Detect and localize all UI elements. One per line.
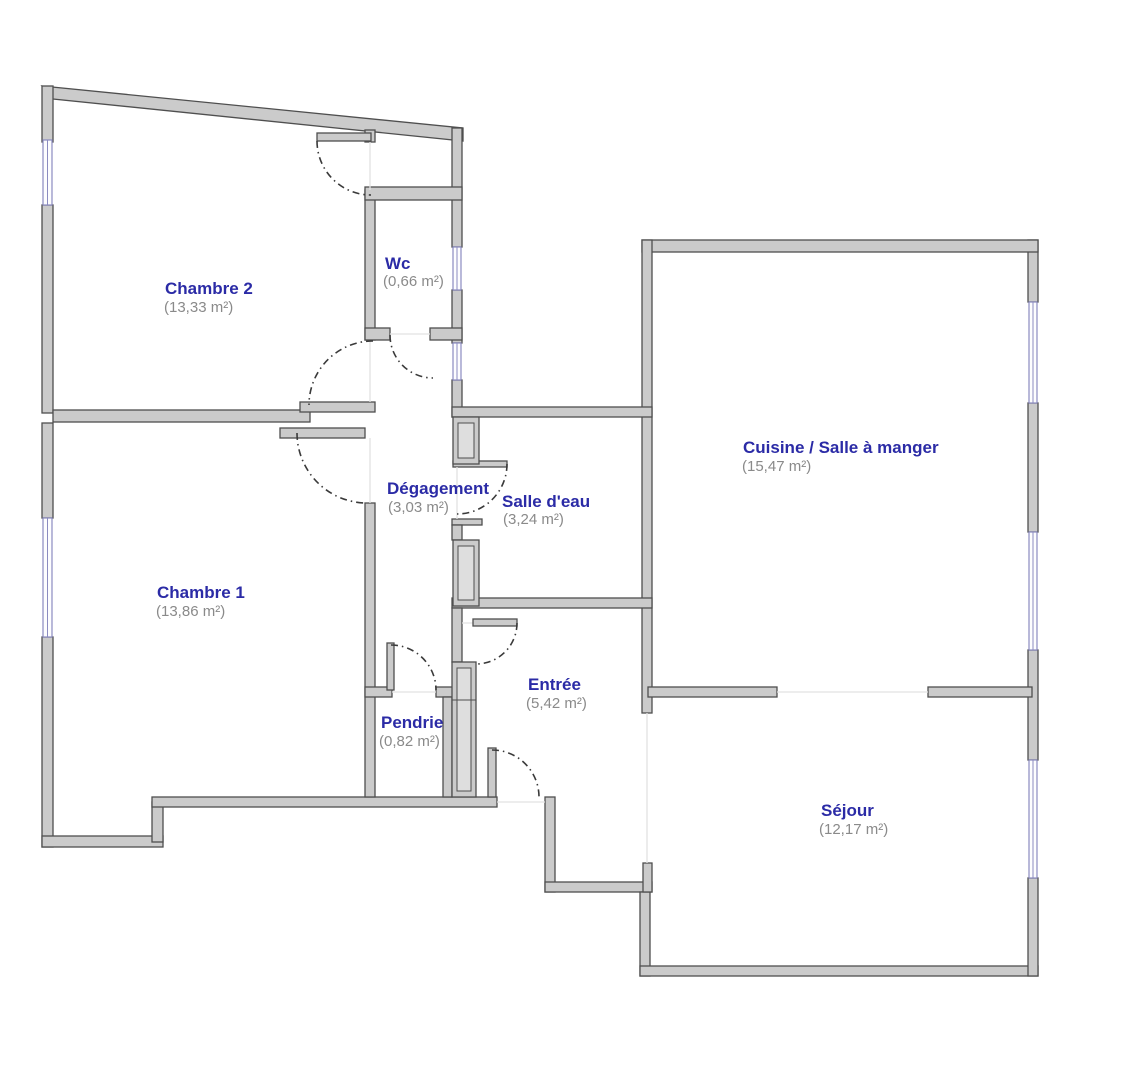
technical-shaft-inner bbox=[458, 546, 474, 600]
wall-segment bbox=[452, 407, 652, 417]
door-leaf bbox=[317, 133, 371, 141]
door-swing-arc bbox=[317, 141, 371, 195]
door-swing-arc bbox=[476, 623, 517, 664]
room-area-entree: (5,42 m²) bbox=[526, 695, 587, 712]
wall-segment bbox=[42, 637, 53, 847]
wall-segment bbox=[42, 205, 53, 413]
wall-segment bbox=[152, 802, 163, 842]
wall-segment bbox=[152, 797, 497, 807]
room-area-wc: (0,66 m²) bbox=[383, 273, 444, 290]
wall-segment bbox=[1028, 650, 1038, 760]
room-area-sejour: (12,17 m²) bbox=[819, 821, 888, 838]
room-label-degagement: Dégagement bbox=[387, 479, 489, 498]
wall-segment bbox=[452, 525, 462, 540]
room-area-pendrie: (0,82 m²) bbox=[379, 733, 440, 750]
room-labels-layer: Chambre 2 (13,33 m²) Wc (0,66 m²) Chambr… bbox=[156, 254, 939, 838]
room-label-wc: Wc bbox=[385, 254, 411, 273]
door-swing-arc bbox=[309, 341, 373, 405]
room-label-salle-deau: Salle d'eau bbox=[502, 492, 590, 511]
floorplan-drawing: Chambre 2 (13,33 m²) Wc (0,66 m²) Chambr… bbox=[0, 0, 1134, 1080]
floorplan-page: Chambre 2 (13,33 m²) Wc (0,66 m²) Chambr… bbox=[0, 0, 1134, 1080]
wall-segment bbox=[642, 240, 1038, 252]
room-label-pendrie: Pendrie bbox=[381, 713, 443, 732]
technical-shaft-inner bbox=[457, 668, 471, 791]
door-leaf bbox=[488, 748, 496, 797]
door-swing-arc bbox=[390, 335, 433, 378]
wall-segment bbox=[443, 697, 452, 797]
wall-segment bbox=[640, 966, 1038, 976]
room-label-sejour: Séjour bbox=[821, 801, 874, 820]
wall-segment bbox=[365, 503, 375, 797]
wall-segment bbox=[430, 328, 462, 340]
room-label-cuisine: Cuisine / Salle à manger bbox=[743, 438, 939, 457]
wall-segment bbox=[452, 608, 462, 662]
wall-segment bbox=[928, 687, 1032, 697]
wall-segment bbox=[452, 519, 482, 525]
wall-segment bbox=[280, 428, 365, 438]
wall-segment bbox=[640, 892, 650, 976]
wall-segment bbox=[53, 410, 310, 422]
room-area-salle-deau: (3,24 m²) bbox=[503, 511, 564, 528]
wall-segment bbox=[365, 190, 375, 340]
room-area-chambre-2: (13,33 m²) bbox=[164, 299, 233, 316]
wall-segment bbox=[648, 687, 777, 697]
walls-layer bbox=[42, 86, 1038, 976]
door-swing-arc bbox=[492, 750, 539, 797]
door-leaf bbox=[387, 643, 394, 690]
wall-segment bbox=[42, 423, 53, 518]
door-swing-arc bbox=[297, 433, 367, 503]
wall-segment bbox=[365, 187, 462, 200]
wall-segment bbox=[42, 836, 163, 847]
wall-segment bbox=[643, 863, 652, 892]
wall-segment bbox=[42, 86, 53, 142]
door-swing-arc bbox=[391, 645, 436, 690]
wall-segment bbox=[1028, 403, 1038, 532]
wall-segment bbox=[452, 598, 652, 608]
exterior-wall-slanted bbox=[42, 86, 463, 141]
door-leaf bbox=[473, 619, 517, 626]
wall-segment bbox=[365, 328, 390, 340]
wall-segment bbox=[1028, 878, 1038, 976]
room-label-entree: Entrée bbox=[528, 675, 581, 694]
room-label-chambre-1: Chambre 1 bbox=[157, 583, 245, 602]
wall-segment bbox=[545, 882, 652, 892]
wall-segment bbox=[642, 240, 652, 713]
wall-segment bbox=[300, 402, 375, 412]
room-label-chambre-2: Chambre 2 bbox=[165, 279, 253, 298]
room-area-cuisine: (15,47 m²) bbox=[742, 458, 811, 475]
room-area-degagement: (3,03 m²) bbox=[388, 499, 449, 516]
wall-segment bbox=[545, 797, 555, 892]
room-area-chambre-1: (13,86 m²) bbox=[156, 603, 225, 620]
technical-shaft-inner bbox=[458, 423, 474, 458]
